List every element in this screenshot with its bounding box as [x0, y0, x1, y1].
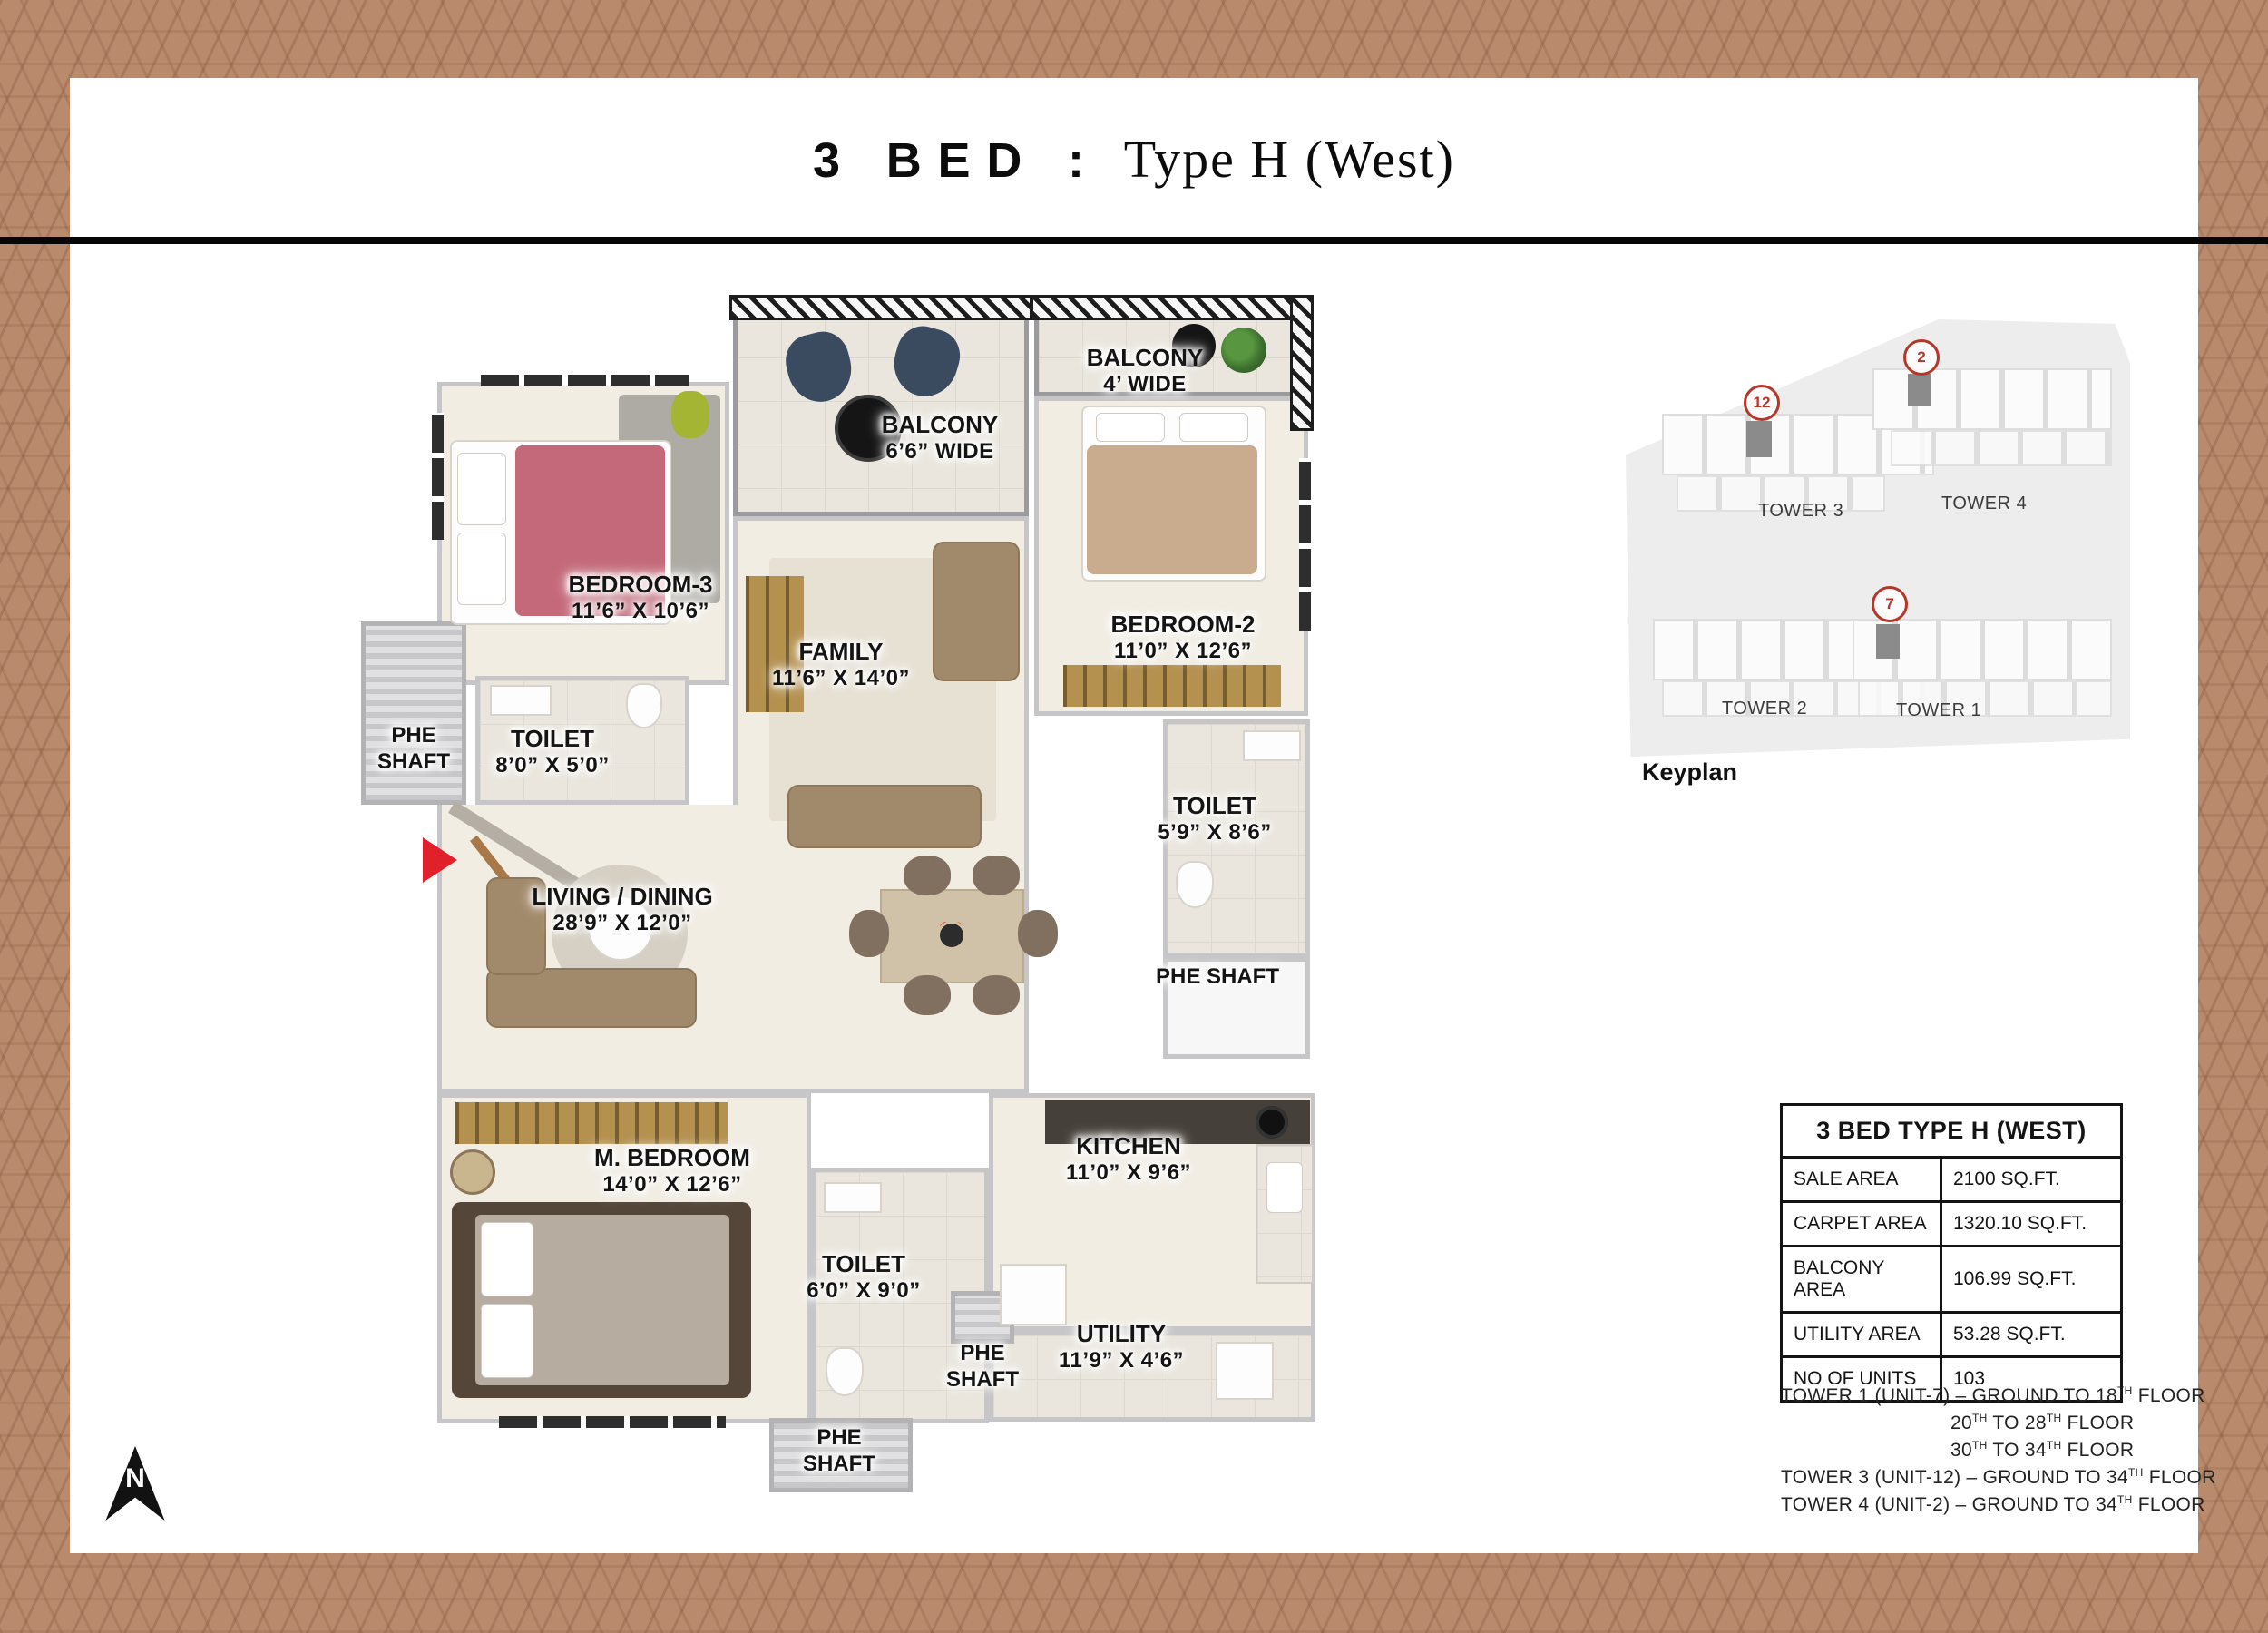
balcony-railing-icon — [1031, 295, 1314, 320]
table-row: SALE AREA 2100 SQ.FT. — [1782, 1158, 2122, 1202]
area-table: 3 BED TYPE H (WEST) SALE AREA 2100 SQ.FT… — [1780, 1103, 2123, 1403]
lamp-icon — [450, 1149, 495, 1195]
room-label-balcony-4: BALCONY4’ WIDE — [1054, 344, 1236, 398]
room-label-master-bedroom: M. BEDROOM14’0” X 12’6” — [554, 1144, 790, 1198]
keyplan-caption: Keyplan — [1642, 758, 1737, 787]
keyplan-label-tower-1: TOWER 1 — [1896, 700, 1981, 721]
chair-icon — [671, 391, 709, 438]
room-label-toilet-bed3: TOILET8’0” X 5’0” — [448, 725, 657, 779]
keyplan-label-tower-2: TOWER 2 — [1722, 699, 1807, 719]
chair-icon — [973, 856, 1020, 895]
bed-icon — [452, 1202, 751, 1398]
keyplan-label-tower-3: TOWER 3 — [1758, 501, 1843, 522]
wardrobe-icon — [1063, 665, 1281, 707]
sink-icon — [490, 685, 552, 716]
window-icon — [432, 413, 444, 540]
kitchen-counter-icon — [1256, 1144, 1314, 1284]
dining-table-icon — [880, 889, 1024, 983]
note-line: TOWER 4 (UNIT-2) – GROUND TO 34TH FLOOR — [1781, 1491, 2216, 1519]
chair-icon — [849, 910, 889, 957]
toilet-icon — [826, 1347, 864, 1396]
note-line: TOWER 1 (UNIT-7) – GROUND TO 18TH FLOOR — [1781, 1383, 2216, 1410]
window-icon — [1299, 458, 1311, 631]
sofa-icon — [933, 542, 1020, 681]
room-label-bedroom-3: BEDROOM-311’6” X 10’6” — [523, 571, 758, 625]
entrance-arrow-icon — [423, 837, 457, 883]
row-value: 53.28 SQ.FT. — [1941, 1313, 2122, 1357]
row-value: 106.99 SQ.FT. — [1941, 1247, 2122, 1313]
tower-floor-notes: TOWER 1 (UNIT-7) – GROUND TO 18TH FLOOR2… — [1781, 1383, 2216, 1519]
page-title-bold: 3 BED : — [813, 133, 1100, 188]
keyplan-label-tower-4: TOWER 4 — [1941, 494, 2027, 514]
bed-icon — [1081, 406, 1266, 582]
sofa-icon — [787, 785, 982, 848]
brochure-page: { "title": { "bold": "3 BED :", "serif":… — [0, 0, 2268, 1633]
row-value: 1320.10 SQ.FT. — [1941, 1202, 2122, 1247]
room-label-bedroom-2: BEDROOM-211’0” X 12’6” — [1070, 611, 1296, 665]
chair-icon — [904, 975, 951, 1015]
note-line: TOWER 3 (UNIT-12) – GROUND TO 34TH FLOOR — [1781, 1464, 2216, 1491]
room-label-living-dining: LIVING / DINING28’9” X 12’0” — [504, 883, 740, 937]
chair-icon — [904, 856, 951, 895]
chair-icon — [1018, 910, 1058, 957]
keyplan-unit-marker-7: 7 — [1872, 586, 1908, 622]
page-title-serif: Type H (West) — [1124, 130, 1455, 189]
keyplan-unit-marker-2: 2 — [1903, 339, 1940, 376]
row-label: CARPET AREA — [1782, 1202, 1941, 1247]
room-label-phe-shaft-right: PHE SHAFT — [1104, 964, 1331, 991]
row-label: BALCONY AREA — [1782, 1247, 1941, 1313]
table-row: UTILITY AREA 53.28 SQ.FT. — [1782, 1313, 2122, 1357]
window-icon — [481, 375, 689, 386]
toilet-icon — [626, 683, 662, 728]
keyplan: 12 2 7 TOWER 3 TOWER 4 TOWER 2 TOWER 1 — [1626, 319, 2130, 757]
row-label: SALE AREA — [1782, 1158, 1941, 1202]
sink-icon — [1243, 730, 1301, 761]
note-line: 20TH TO 28TH FLOOR — [1950, 1410, 2216, 1437]
north-arrow-label: N — [125, 1463, 145, 1494]
toilet-icon — [1176, 861, 1214, 908]
chair-icon — [973, 975, 1020, 1015]
room-label-toilet-bed2: TOILET5’9” X 8’6” — [1124, 792, 1305, 846]
keyplan-highlight-unit-7 — [1876, 624, 1900, 659]
north-arrow-icon: N — [102, 1446, 169, 1521]
sink-icon — [824, 1182, 882, 1213]
floor-plan: BALCONY4’ WIDE BALCONY6’6” WIDE BEDROOM-… — [399, 304, 1315, 1492]
keyplan-tower4-buildings — [1891, 430, 2112, 466]
fridge-icon — [1000, 1264, 1067, 1325]
table-row: CARPET AREA 1320.10 SQ.FT. — [1782, 1202, 2122, 1247]
area-table-header-row: 3 BED TYPE H (WEST) — [1782, 1105, 2122, 1158]
window-icon — [499, 1416, 726, 1428]
keyplan-unit-marker-12: 12 — [1744, 385, 1780, 421]
balcony-railing-icon — [729, 295, 1032, 320]
title-divider — [0, 237, 2268, 244]
table-row: BALCONY AREA 106.99 SQ.FT. — [1782, 1247, 2122, 1313]
wardrobe-icon — [455, 1102, 728, 1144]
keyplan-highlight-unit-2 — [1908, 374, 1931, 406]
room-label-kitchen: KITCHEN11’0” X 9’6” — [1011, 1132, 1246, 1187]
sofa-icon — [486, 968, 697, 1028]
room-label-utility: UTILITY11’9” X 4’6” — [1003, 1320, 1239, 1374]
room-label-phe-shaft-bottom: PHE SHAFT — [785, 1425, 894, 1478]
note-line: 30TH TO 34TH FLOOR — [1950, 1437, 2216, 1464]
room-label-balcony-66: BALCONY6’6” WIDE — [831, 411, 1049, 465]
room-label-phe-shaft-center: PHE SHAFT — [928, 1341, 1037, 1393]
row-label: UTILITY AREA — [1782, 1313, 1941, 1357]
room-label-family: FAMILY11’6” X 14’0” — [755, 638, 927, 692]
room-label-toilet-master: TOILET6’0” X 9’0” — [773, 1250, 954, 1305]
row-value: 2100 SQ.FT. — [1941, 1158, 2122, 1202]
area-table-title: 3 BED TYPE H (WEST) — [1782, 1105, 2122, 1158]
page-title: 3 BED :Type H (West) — [0, 129, 2268, 190]
balcony-railing-icon — [1290, 295, 1314, 431]
keyplan-highlight-unit-12 — [1746, 421, 1772, 457]
